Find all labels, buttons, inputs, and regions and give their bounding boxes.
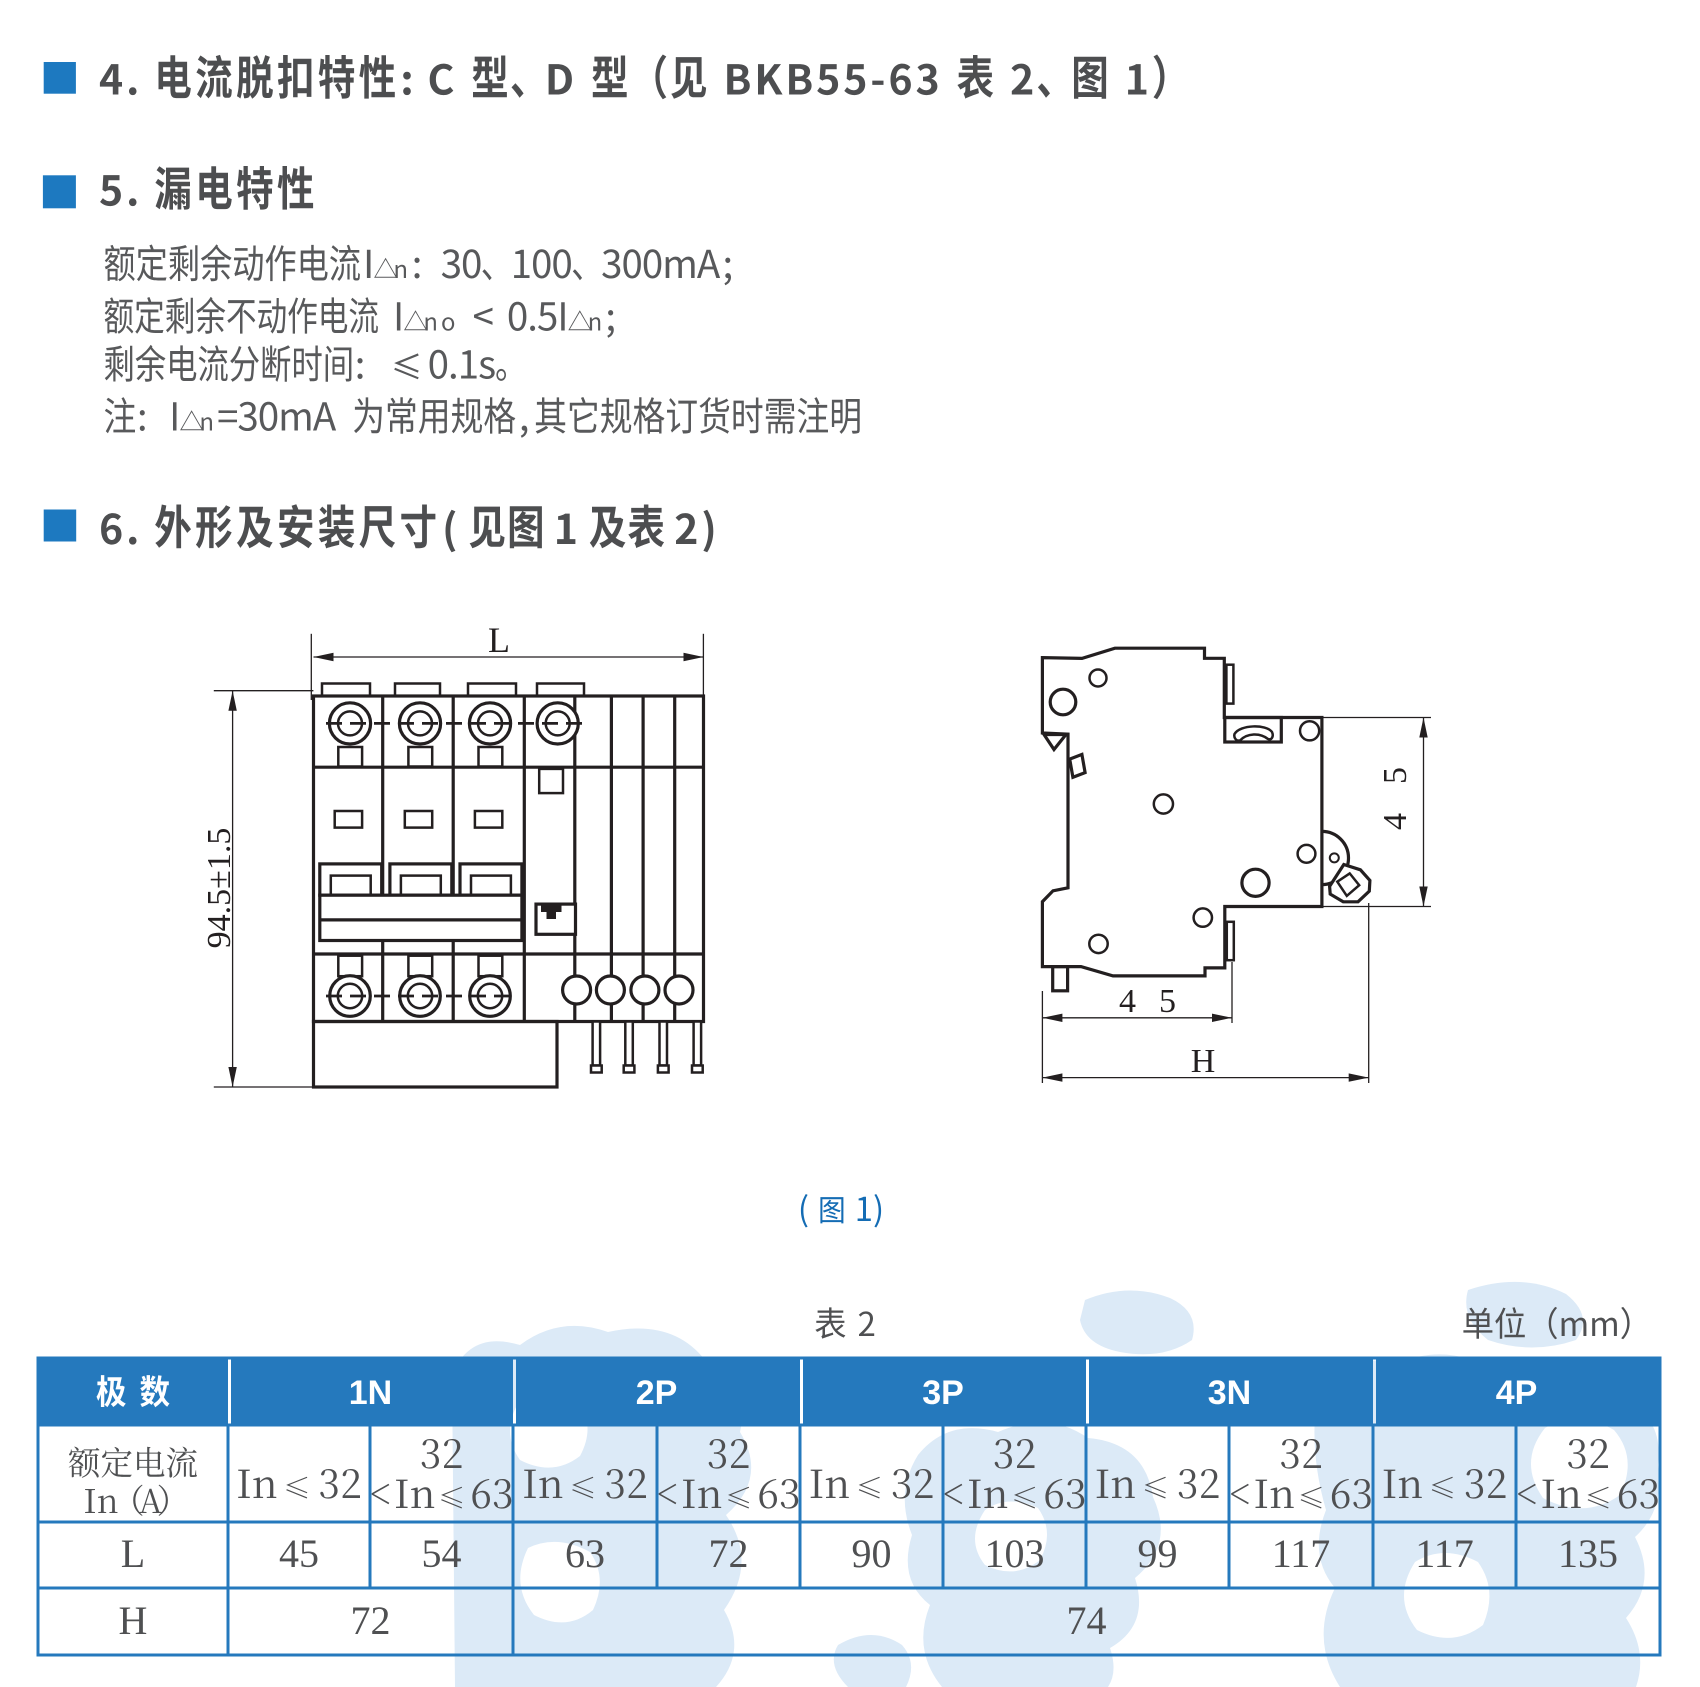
svg-text:L: L xyxy=(488,620,510,660)
svg-text:1N: 1N xyxy=(349,1374,392,1412)
svg-text:4: 4 xyxy=(1377,813,1414,830)
svg-text:45: 45 xyxy=(279,1531,319,1576)
svg-text:2P: 2P xyxy=(636,1374,678,1412)
svg-text:5: 5 xyxy=(1377,767,1414,784)
svg-text:3P: 3P xyxy=(922,1374,964,1412)
svg-text:3N: 3N xyxy=(1208,1374,1251,1412)
svg-text:H: H xyxy=(1191,1043,1216,1080)
svg-text:54: 54 xyxy=(422,1531,462,1576)
svg-text:63: 63 xyxy=(565,1531,605,1576)
svg-text:4P: 4P xyxy=(1496,1374,1538,1412)
svg-text:103: 103 xyxy=(985,1531,1045,1576)
svg-text:4: 4 xyxy=(1119,983,1136,1020)
svg-text:72: 72 xyxy=(709,1531,749,1576)
svg-text:H: H xyxy=(119,1598,148,1643)
svg-text:94.5±1.5: 94.5±1.5 xyxy=(201,828,238,949)
svg-text:135: 135 xyxy=(1558,1531,1618,1576)
svg-text:90: 90 xyxy=(852,1531,892,1576)
svg-text:72: 72 xyxy=(351,1598,391,1643)
svg-text:99: 99 xyxy=(1138,1531,1178,1576)
svg-text:74: 74 xyxy=(1067,1598,1107,1643)
svg-text:117: 117 xyxy=(1415,1531,1474,1576)
svg-text:L: L xyxy=(121,1531,145,1576)
svg-text:117: 117 xyxy=(1272,1531,1331,1576)
svg-text:5: 5 xyxy=(1159,983,1176,1020)
